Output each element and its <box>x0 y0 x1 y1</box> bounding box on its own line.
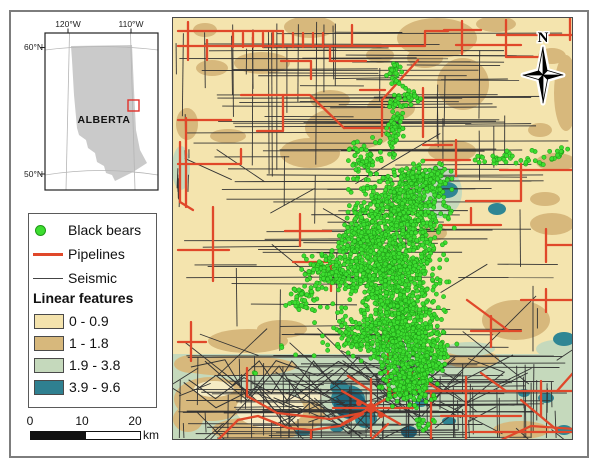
map-figure: 120°W 110°W 60°N 50°N ALBERTA <box>0 0 600 469</box>
inset-lat-bottom-label: 50°N <box>24 169 43 179</box>
north-arrow: N <box>516 26 570 112</box>
black-bear-dot-icon <box>35 225 46 236</box>
ramp-swatch <box>34 380 64 395</box>
scale-bar-track <box>30 431 141 440</box>
legend-item-label: Pipelines <box>68 246 125 262</box>
scale-bar: 01020km <box>27 413 177 447</box>
legend-item-seismic: Seismic <box>29 270 156 286</box>
inset-map-layers <box>41 29 159 191</box>
seismic-line-icon <box>33 278 63 279</box>
main-map <box>172 17 573 440</box>
north-label: N <box>538 30 549 46</box>
ramp-swatch <box>34 336 64 351</box>
ramp-swatch <box>34 358 64 373</box>
inset-lon-right-label: 110°W <box>119 19 144 29</box>
ramp-label: 1.9 - 3.8 <box>69 358 120 373</box>
legend-item-label: Black bears <box>68 222 141 238</box>
ramp-label: 3.9 - 9.6 <box>69 380 120 395</box>
ramp-label: 1 - 1.8 <box>69 336 109 351</box>
scale-bar-filled-half <box>31 432 86 439</box>
north-arrow-icon <box>523 47 563 103</box>
inset-province-label: ALBERTA <box>78 114 131 126</box>
legend-ramp-row: 3.9 - 9.6 <box>29 380 156 395</box>
legend-ramp-row: 1.9 - 3.8 <box>29 358 156 373</box>
inset-lon-left-label: 120°W <box>55 19 81 29</box>
legend-ramp-title: Linear features <box>33 290 133 306</box>
scale-unit-label: km <box>143 428 159 442</box>
legend-item-pipelines: Pipelines <box>29 246 156 262</box>
scale-tick-label: 20 <box>128 414 141 428</box>
legend-ramp-row: 0 - 0.9 <box>29 314 156 329</box>
legend-item-label: Seismic <box>68 270 117 286</box>
legend: Black bearsPipelinesSeismicLinear featur… <box>28 213 157 408</box>
legend-item-black-bears: Black bears <box>29 222 156 238</box>
ramp-swatch <box>34 314 64 329</box>
scale-tick-label: 0 <box>27 414 34 428</box>
legend-ramp-row: 1 - 1.8 <box>29 336 156 351</box>
inset-map: 120°W 110°W 60°N 50°N ALBERTA <box>20 14 166 196</box>
ramp-label: 0 - 0.9 <box>69 314 109 329</box>
scale-tick-label: 10 <box>75 414 88 428</box>
pipelines-line-icon <box>33 253 63 256</box>
inset-lat-top-label: 60°N <box>24 42 43 52</box>
